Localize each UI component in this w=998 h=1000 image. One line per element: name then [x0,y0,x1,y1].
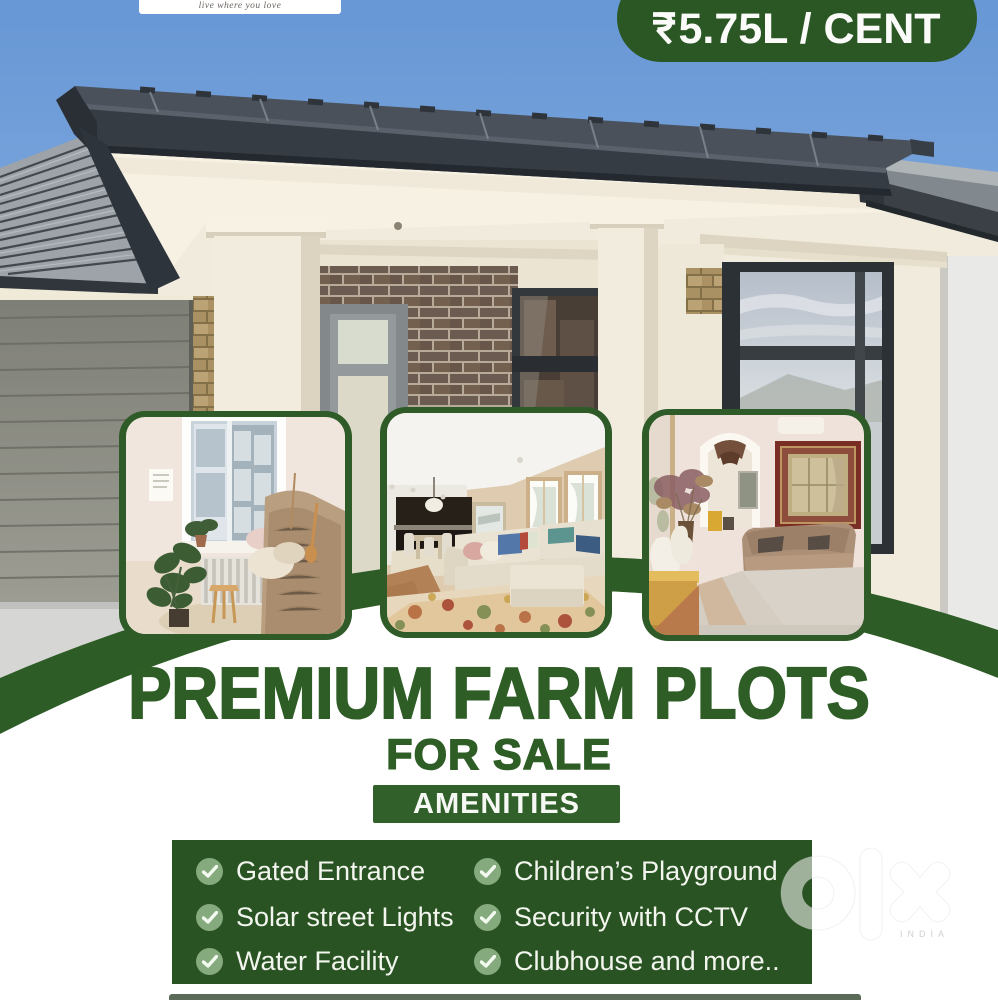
svg-text:INDIA: INDIA [900,929,949,939]
